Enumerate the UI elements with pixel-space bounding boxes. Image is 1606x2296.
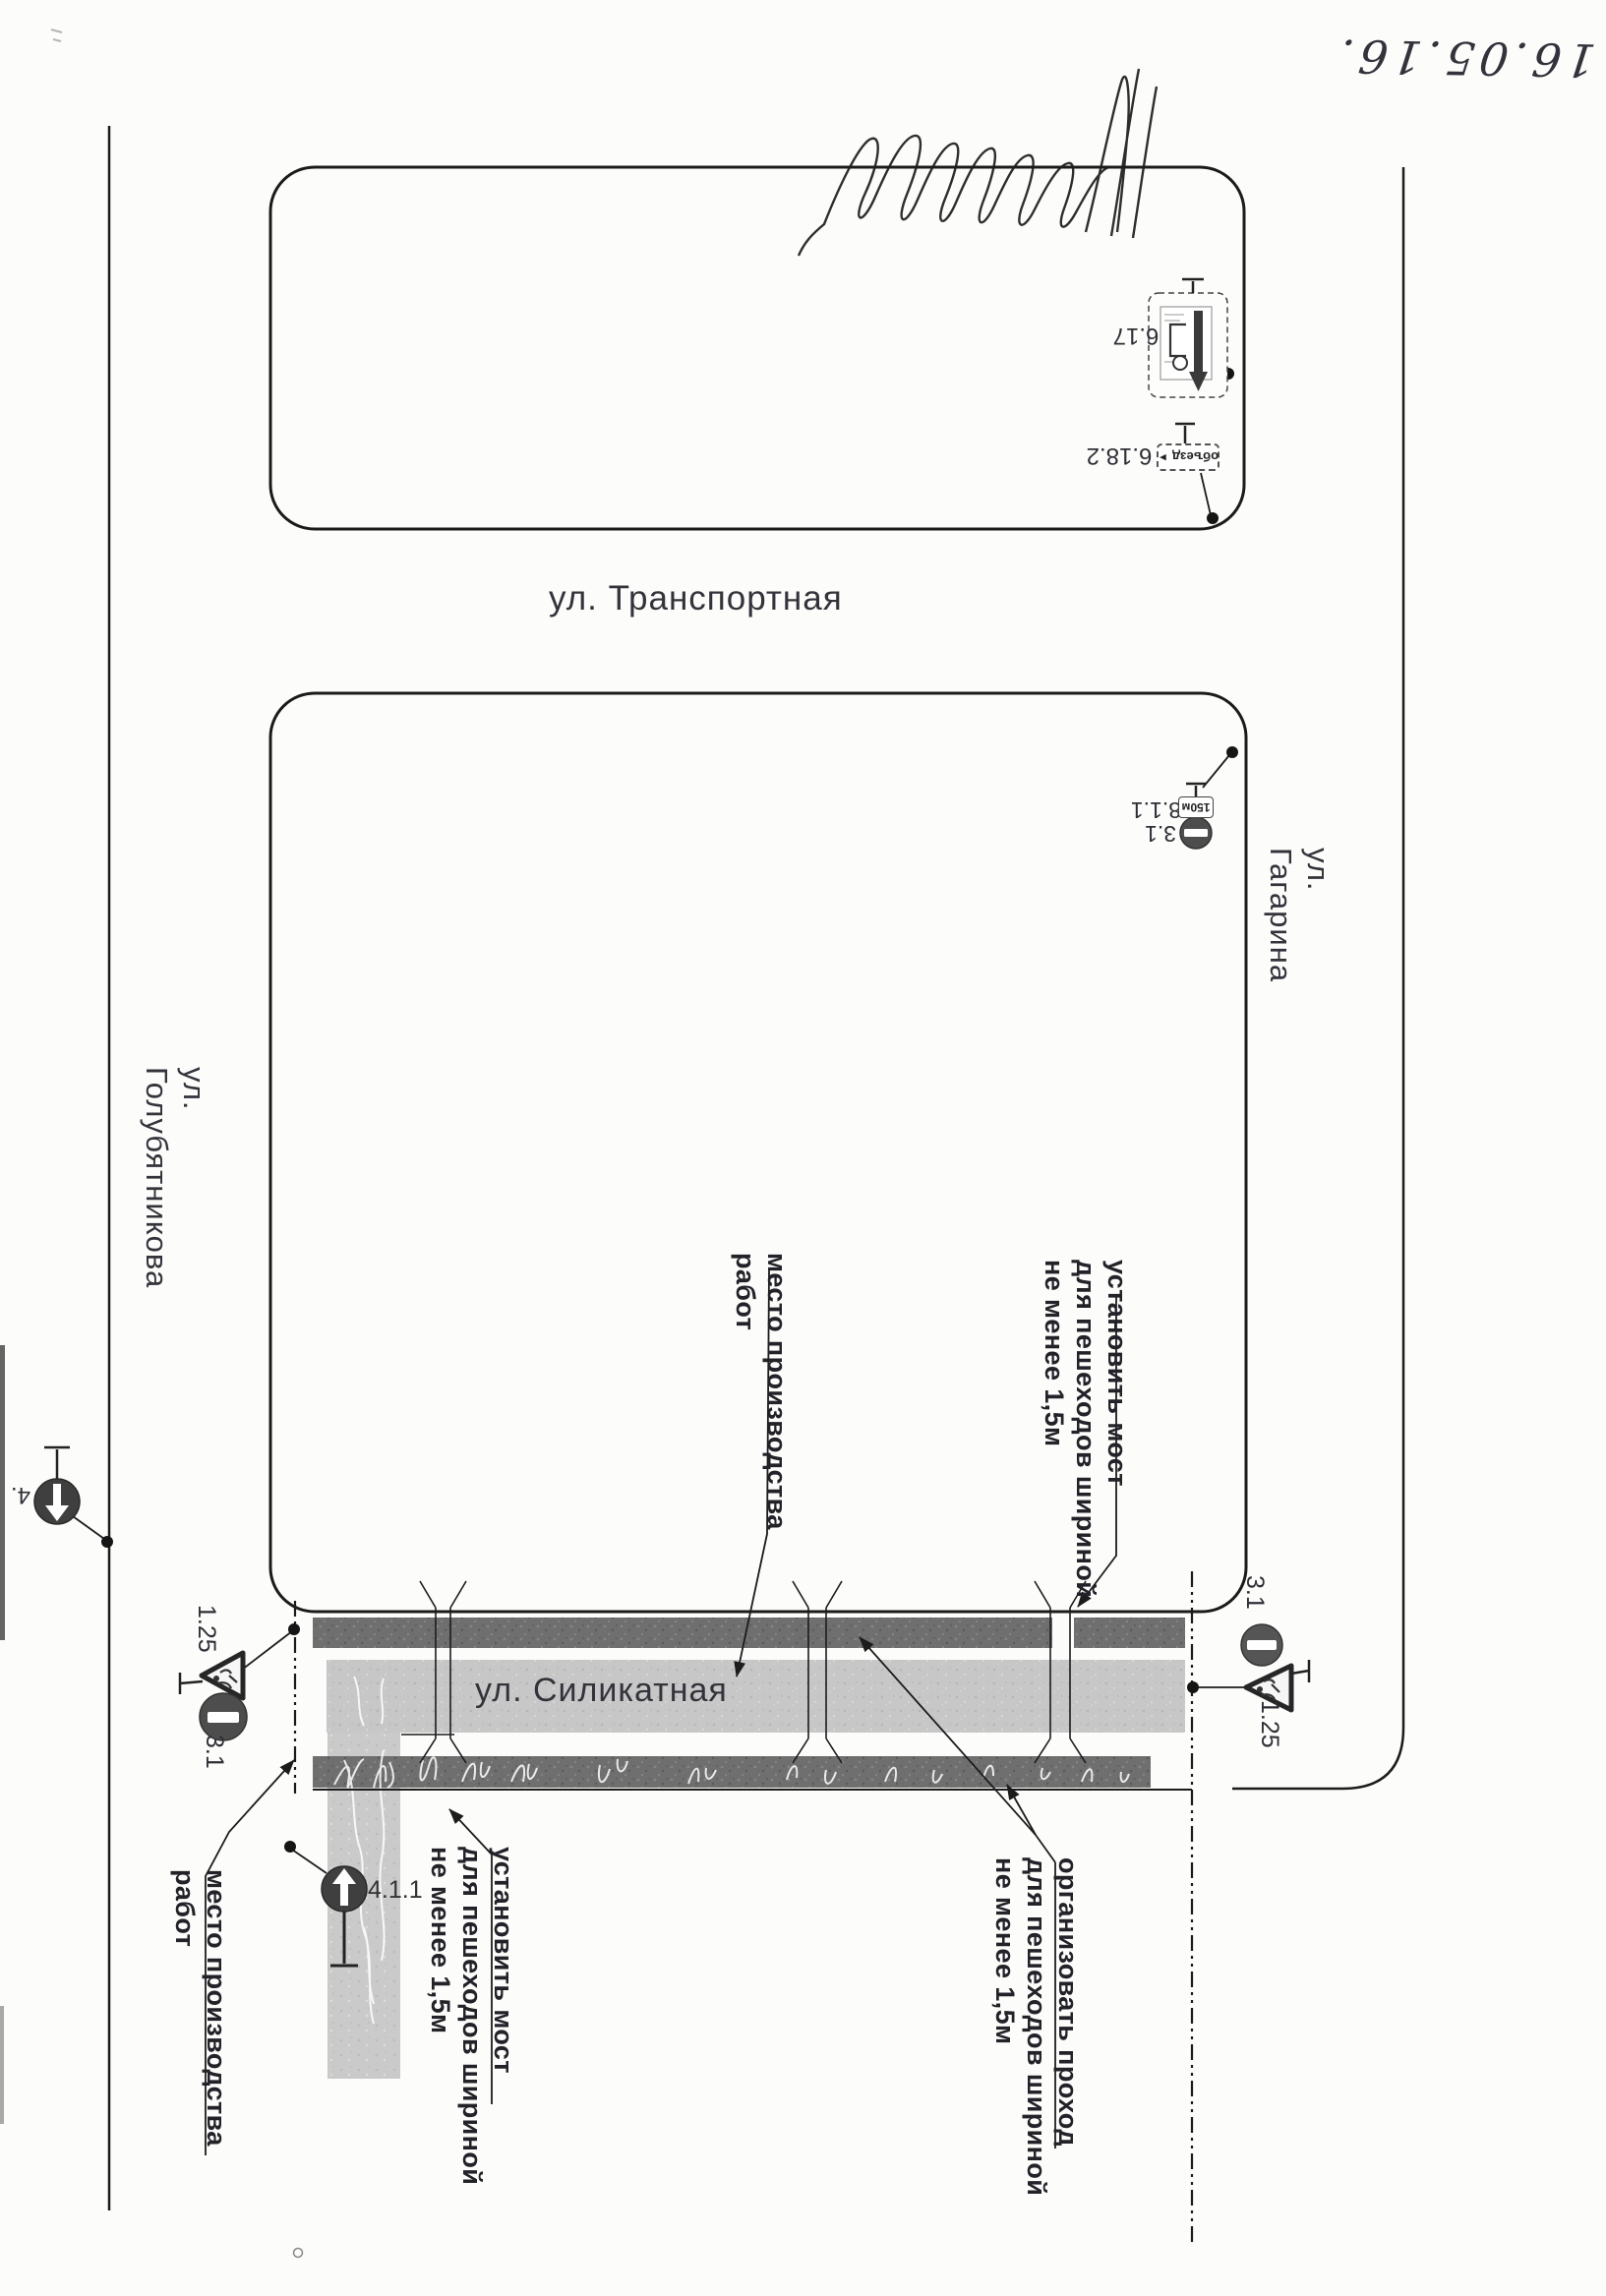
distance-plate-text: 150м — [1182, 800, 1211, 814]
street-label-golubyatnikova: ул. Голубятникова — [138, 1067, 212, 1313]
scheme-drawing — [0, 0, 1606, 2296]
handwritten-date: 16.05.16. — [1332, 12, 1601, 87]
detour-direction-plate: объезд ► — [1157, 443, 1219, 471]
annotation-organize-passage: организовать проход для пешеходов ширино… — [989, 1857, 1084, 2290]
sign-label-6-18-2: 6.18.2 — [1082, 442, 1157, 469]
sign-label-1-25-right: 1.25 — [1255, 1700, 1283, 1794]
sign-label-3-1-right: 3.1 — [1240, 1575, 1269, 1634]
detour-plate-text: объезд — [1172, 450, 1219, 465]
annotation-work-site-center: место производства работ — [730, 1253, 793, 1548]
ahead-only-sign-icon-left — [34, 1447, 80, 1524]
annotation-install-bridge-bottom: установить мост для пешеходов шириной не… — [425, 1847, 519, 2289]
no-entry-sign-icon-left — [200, 1693, 247, 1740]
sign-label-4-left: 4. — [4, 1481, 37, 1508]
sign-label-3-1-top: 3.1 — [1142, 820, 1179, 847]
detour-arrow-icon: ► — [1158, 451, 1168, 463]
sign-label-8-1-1: 8.1.1 — [1136, 796, 1181, 823]
detour-direction-sign-pole — [1175, 424, 1195, 443]
distance-plate: 150м — [1178, 796, 1214, 818]
detour-scheme-sign-icon — [1149, 279, 1227, 397]
sign-label-6-17: 6.17 — [1111, 322, 1160, 349]
street-label-silikatnaya: ул. Силикатная — [475, 1672, 728, 1710]
annotation-work-site-bottom: место производства работ — [169, 1869, 232, 2253]
signature-icon — [799, 69, 1157, 256]
sign-label-1-25-left: 1.25 — [192, 1605, 220, 1698]
street-label-gagarina: ул. Гагарина — [1262, 848, 1337, 1025]
street-boundaries — [109, 126, 1403, 2210]
street-label-transportnaya: ул. Транспортная — [549, 579, 843, 618]
sign-label-4-1-1: 4.1.1 — [368, 1876, 423, 1905]
annotation-install-bridge-right: установить мост для пешеходов шириной не… — [1039, 1260, 1133, 1697]
sign-label-3-1-left: 3.1 — [200, 1735, 228, 1794]
scanned-traffic-scheme: 16.05.16. ул. Транспортная ул. Гагарина … — [0, 0, 1606, 2296]
